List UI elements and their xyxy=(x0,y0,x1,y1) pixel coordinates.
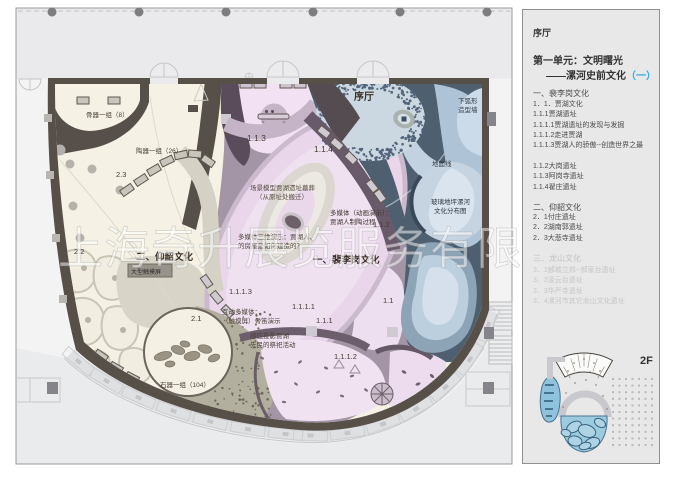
svg-text:1.1.1.1: 1.1.1.1 xyxy=(292,302,315,311)
svg-text:1.1.1.3: 1.1.1.3 xyxy=(229,287,252,296)
svg-text:1.1.1: 1.1.1 xyxy=(316,316,333,325)
svg-text:1.1.3: 1.1.3 xyxy=(247,133,266,143)
svg-text:场景模型贾湖遗址墓葬: 场景模型贾湖遗址墓葬 xyxy=(250,183,316,192)
svg-text:先民的祭祀活动: 先民的祭祀活动 xyxy=(250,340,296,349)
svg-text:玻璃地坪漯河: 玻璃地坪漯河 xyxy=(431,197,471,206)
svg-text:骨器一组（8）: 骨器一组（8） xyxy=(86,110,129,119)
svg-text:互动多媒体：: 互动多媒体： xyxy=(222,307,261,316)
svg-text:地面线: 地面线 xyxy=(432,159,452,168)
svg-text:2.3: 2.3 xyxy=(116,170,126,179)
svg-text:下弧形: 下弧形 xyxy=(458,96,478,105)
svg-text:1.1: 1.1 xyxy=(383,296,393,305)
svg-text:序厅: 序厅 xyxy=(354,90,374,103)
svg-text:（触摸屏）骨笛演示: （触摸屏）骨笛演示 xyxy=(222,316,281,325)
svg-text:1.1.4: 1.1.4 xyxy=(314,144,333,154)
svg-text:1.1.1.2: 1.1.1.2 xyxy=(334,352,357,361)
svg-text:2.1: 2.1 xyxy=(191,314,201,323)
svg-text:（从原址处搬迁）: （从原址处搬迁） xyxy=(256,192,308,201)
svg-text:陶器一组（26）: 陶器一组（26） xyxy=(136,146,182,155)
svg-text:石器一组（104）: 石器一组（104） xyxy=(160,380,210,389)
svg-text:感应投影贾湖: 感应投影贾湖 xyxy=(250,331,290,340)
svg-text:文化分布图: 文化分布图 xyxy=(434,206,467,215)
svg-text:造型墙: 造型墙 xyxy=(458,105,478,114)
svg-text:多媒体（动画演示）：: 多媒体（动画演示）： xyxy=(330,208,392,217)
